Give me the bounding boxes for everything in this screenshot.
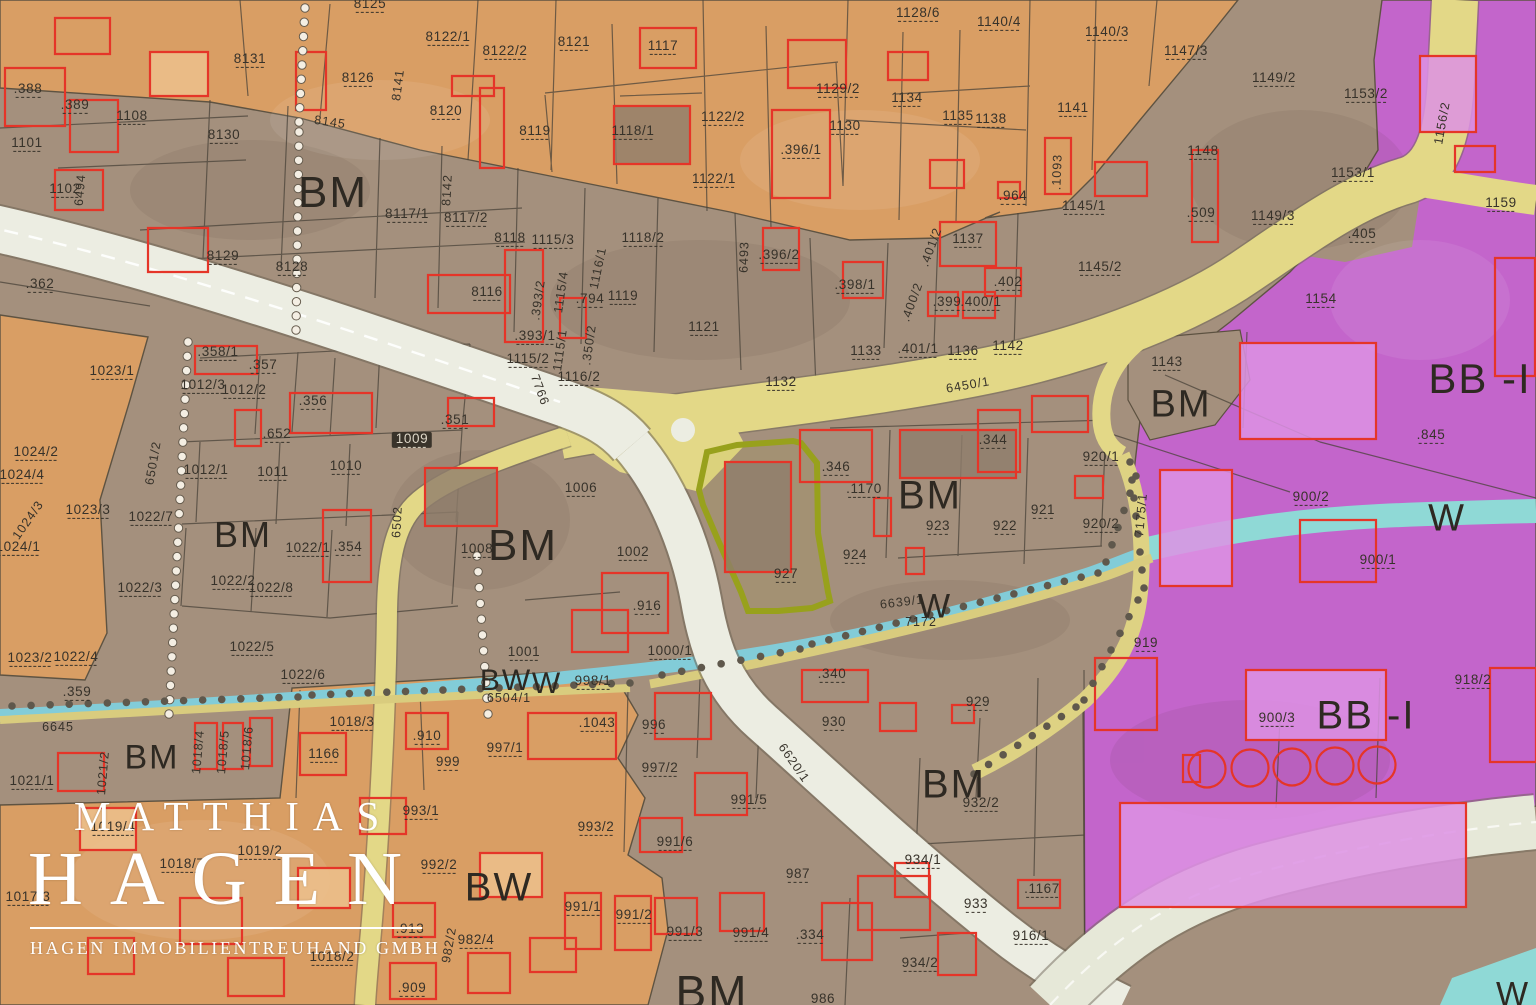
roundabout	[671, 418, 695, 442]
watermark: MATTHIAS HAGEN HAGEN IMMOBILIENTREUHAND …	[28, 792, 440, 959]
watermark-company: HAGEN IMMOBILIENTREUHAND GMBH	[28, 938, 440, 959]
watermark-last-name: HAGEN	[28, 836, 440, 923]
map-viewport[interactable]: .388.38911011108813181268125812081308119…	[0, 0, 1536, 1005]
road-branch-east	[1408, 180, 1536, 200]
watermark-divider	[30, 927, 422, 929]
watermark-first-name: MATTHIAS	[28, 792, 440, 840]
